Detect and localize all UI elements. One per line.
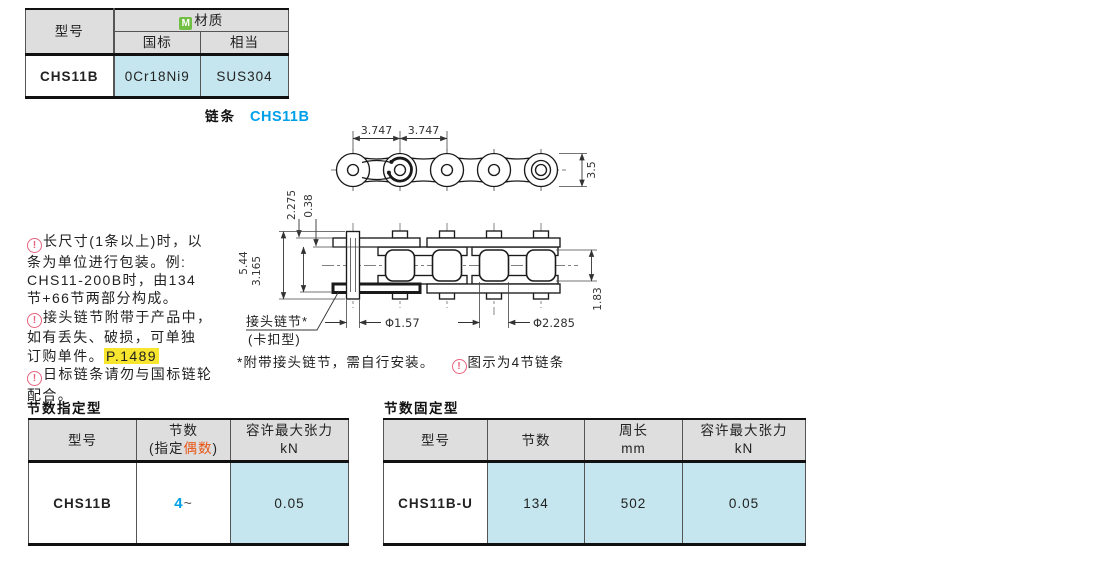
spec-table-right: 型号 节数 周长 mm 容许最大张力 kN CHS11B-U 134 502 0… (383, 418, 806, 546)
spec-table-left-title: 节数指定型 (27, 397, 102, 417)
joint-link-label: 接头链节* (246, 311, 308, 330)
spec-left-header-links: 节数 (指定偶数) (137, 419, 231, 462)
spec-right-header-length: 周长 mm (585, 419, 683, 462)
spec-right-row-tension: 0.05 (683, 462, 806, 545)
spec-right-header-tension: 容许最大张力 kN (683, 419, 806, 462)
spec-table-right-title: 节数固定型 (384, 397, 459, 417)
caution-notes: 长尺寸(1条以上)时，以 条为单位进行包装。例: CHS11-200B时，由13… (27, 232, 259, 404)
dim-pin-dia: Φ1.57 (385, 316, 420, 330)
material-row-gb: 0Cr18Ni9 (114, 55, 201, 98)
material-icon: M (179, 17, 192, 30)
page-reference-link[interactable]: P.1489 (104, 348, 159, 364)
spec-table-left: 型号 节数 (指定偶数) 容许最大张力 kN CHS11B 4~ 0.05 (28, 418, 349, 546)
note-joint-link: 接头链节附带于产品中， 如有丢失、破损，可单独 订购单件。P.1489 (27, 308, 259, 365)
material-row-equivalent: SUS304 (201, 55, 289, 98)
joint-link-type-label: (卡扣型) (248, 329, 301, 348)
spec-right-row-length: 502 (585, 462, 683, 545)
caution-icon (27, 313, 42, 328)
spec-right-row-model: CHS11B-U (384, 462, 488, 545)
material-table-header-gb: 国标 (114, 32, 201, 55)
drawing-footnote: *附带接头链节，需自行安装。 图示为4节链条 (237, 351, 564, 374)
note-packaging: 长尺寸(1条以上)时，以 条为单位进行包装。例: CHS11-200B时，由13… (27, 232, 259, 308)
drawing-caption-label: 链条 (205, 109, 236, 124)
dim-roller-dia: Φ2.285 (533, 316, 575, 330)
caution-icon (452, 359, 467, 374)
spec-left-row-tension: 0.05 (231, 462, 349, 545)
dim-pitch-left: 3.747 (361, 124, 393, 137)
spec-right-header-links: 节数 (488, 419, 585, 462)
note-text: 长尺寸(1条以上)时，以 条为单位进行包装。例: CHS11-200B时，由13… (27, 233, 203, 306)
dim-roller-height: 1.83 (592, 287, 604, 310)
catalog-page: 3.747 3.747 3.5 2.275 0.38 5.44 3.165 (0, 0, 1100, 565)
table-row: CHS11B-U 134 502 0.05 (384, 462, 806, 545)
caution-icon (27, 371, 42, 386)
material-table: 型号 M材质 国标 相当 CHS11B 0Cr18Ni9 SUS304 (25, 8, 289, 99)
caution-icon (27, 238, 42, 253)
spec-left-header-model: 型号 (29, 419, 137, 462)
footnote-links: 图示为4节链条 (468, 355, 565, 370)
spec-left-row-model: CHS11B (29, 462, 137, 545)
material-table-header-material: M材质 (114, 9, 289, 32)
footnote-install: *附带接头链节，需自行安装。 (237, 355, 435, 370)
spec-left-header-tension: 容许最大张力 kN (231, 419, 349, 462)
drawing-caption-model: CHS11B (250, 109, 309, 125)
dim-plate-thickness: 0.38 (303, 194, 315, 217)
dim-pin-end: 2.275 (286, 190, 298, 220)
dim-pitch-right: 3.747 (408, 124, 440, 137)
material-table-header-equivalent: 相当 (201, 32, 289, 55)
spec-right-row-links: 134 (488, 462, 585, 545)
spec-right-header-model: 型号 (384, 419, 488, 462)
material-row-model: CHS11B (26, 55, 114, 98)
drawing-caption: 链条CHS11B (205, 105, 309, 126)
chain-side-view (322, 223, 578, 315)
chain-top-view (331, 149, 566, 191)
dim-plate-width: 3.5 (585, 161, 598, 179)
material-table-header-model: 型号 (26, 9, 114, 55)
spec-left-row-links: 4~ (137, 462, 231, 545)
table-row: CHS11B 4~ 0.05 (29, 462, 349, 545)
